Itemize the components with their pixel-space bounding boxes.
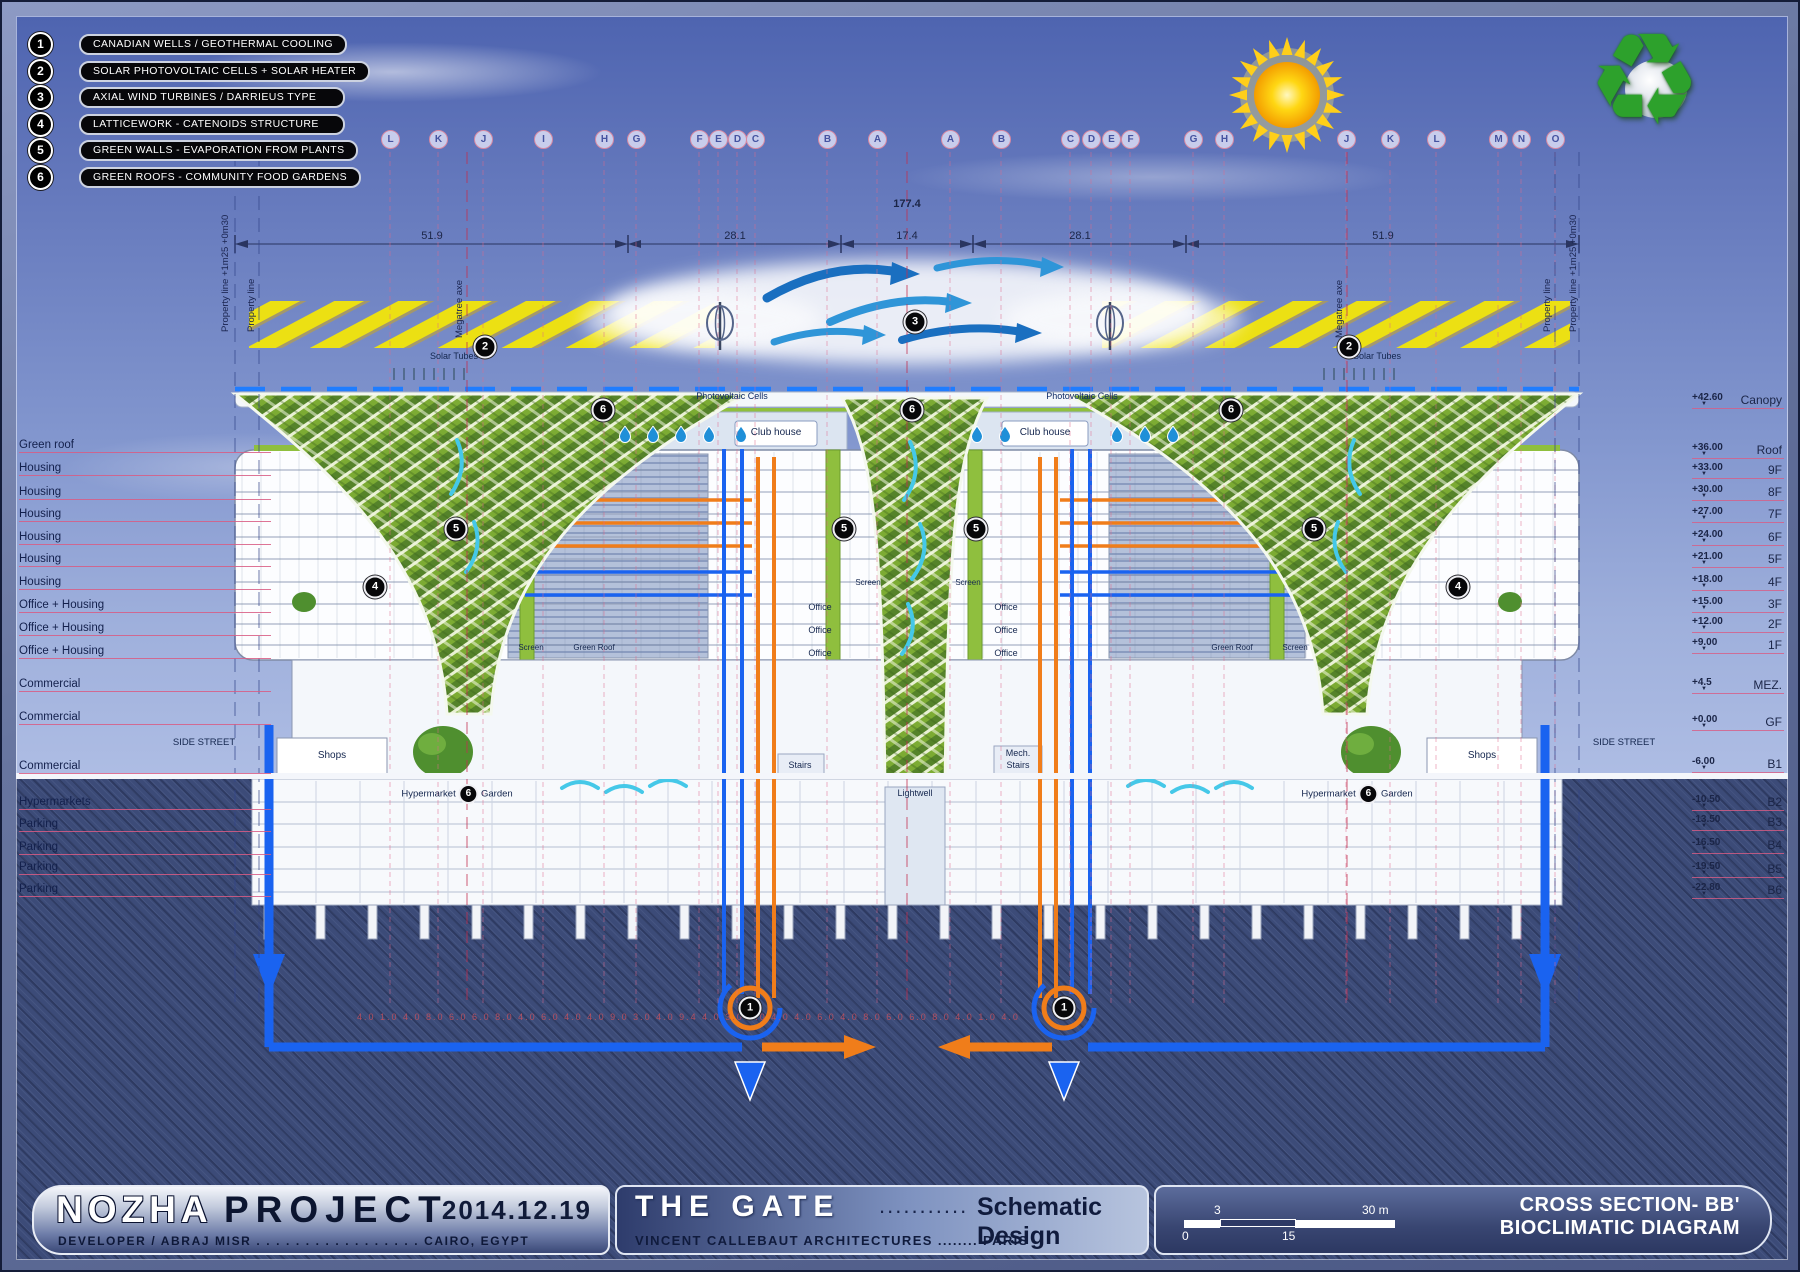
title-dots: ........... bbox=[879, 1193, 968, 1219]
sheet-title-line2: BIOCLIMATIC DIAGRAM bbox=[1500, 1217, 1740, 1240]
section-drawing bbox=[2, 2, 1800, 1272]
sheet-title-line1: CROSS SECTION- BB' bbox=[1500, 1194, 1740, 1217]
legend-item: 6GREEN ROOFS - COMMUNITY FOOD GARDENS bbox=[28, 165, 361, 190]
scale-segment bbox=[1184, 1220, 1220, 1228]
legend-number: 2 bbox=[28, 59, 53, 84]
legend-number: 6 bbox=[28, 165, 53, 190]
title-bar: NOZHA PROJECT 2014.12.19 DEVELOPER / ABR… bbox=[32, 1185, 1772, 1255]
date: 2014.12.19 bbox=[442, 1195, 592, 1226]
legend-number: 4 bbox=[28, 112, 53, 137]
gate-panel: THE GATE ........... Schematic Design VI… bbox=[615, 1185, 1149, 1255]
sheet-title: CROSS SECTION- BB' BIOCLIMATIC DIAGRAM bbox=[1500, 1194, 1740, 1240]
solar-tubes bbox=[394, 368, 1394, 380]
legend-item: 5GREEN WALLS - EVAPORATION FROM PLANTS bbox=[28, 138, 358, 163]
scale-0: 0 bbox=[1182, 1229, 1189, 1243]
sun-icon bbox=[1229, 37, 1345, 153]
street-level-line bbox=[16, 773, 1788, 779]
scale-bar: 3 30 m 0 15 bbox=[1184, 1209, 1434, 1235]
legend-item: 4LATTICEWORK - CATENOIDS STRUCTURE bbox=[28, 112, 345, 137]
legend-label: SOLAR PHOTOVOLTAIC CELLS + SOLAR HEATER bbox=[79, 61, 370, 82]
sheet-panel: 3 30 m 0 15 CROSS SECTION- BB' BIOCLIMAT… bbox=[1154, 1185, 1772, 1255]
project-name-2: PROJECT bbox=[224, 1189, 448, 1231]
legend-label: LATTICEWORK - CATENOIDS STRUCTURE bbox=[79, 114, 345, 135]
developer-line: DEVELOPER / ABRAJ MISR . . . . . . . . .… bbox=[58, 1234, 529, 1248]
recycle-logo: ♻ bbox=[1587, 20, 1727, 150]
project-panel: NOZHA PROJECT 2014.12.19 DEVELOPER / ABR… bbox=[32, 1185, 610, 1255]
scale-15: 15 bbox=[1282, 1229, 1295, 1243]
legend-number: 3 bbox=[28, 85, 53, 110]
legend-label: AXIAL WIND TURBINES / DARRIEUS TYPE bbox=[79, 87, 345, 108]
legend-number: 5 bbox=[28, 138, 53, 163]
architect-line: VINCENT CALLEBAUT ARCHITECTURES ........… bbox=[635, 1233, 1029, 1248]
legend-item: 2SOLAR PHOTOVOLTAIC CELLS + SOLAR HEATER bbox=[28, 59, 370, 84]
legend-label: GREEN WALLS - EVAPORATION FROM PLANTS bbox=[79, 140, 358, 161]
legend-label: CANADIAN WELLS / GEOTHERMAL COOLING bbox=[79, 34, 347, 55]
recycle-icon: ♻ bbox=[1587, 6, 1702, 155]
pile-foundations bbox=[264, 905, 1521, 939]
gate-title: THE GATE bbox=[635, 1190, 840, 1224]
legend-item: 3AXIAL WIND TURBINES / DARRIEUS TYPE bbox=[28, 85, 345, 110]
legend-item: 1CANADIAN WELLS / GEOTHERMAL COOLING bbox=[28, 32, 347, 57]
scale-30m: 30 m bbox=[1362, 1203, 1389, 1217]
legend-number: 1 bbox=[28, 32, 53, 57]
project-name: NOZHA bbox=[56, 1189, 213, 1231]
drawing-sheet: 1CANADIAN WELLS / GEOTHERMAL COOLING2SOL… bbox=[0, 0, 1800, 1272]
scale-segment bbox=[1220, 1219, 1296, 1227]
scale-segment bbox=[1295, 1220, 1395, 1228]
legend-label: GREEN ROOFS - COMMUNITY FOOD GARDENS bbox=[79, 167, 361, 188]
scale-3: 3 bbox=[1214, 1203, 1221, 1217]
